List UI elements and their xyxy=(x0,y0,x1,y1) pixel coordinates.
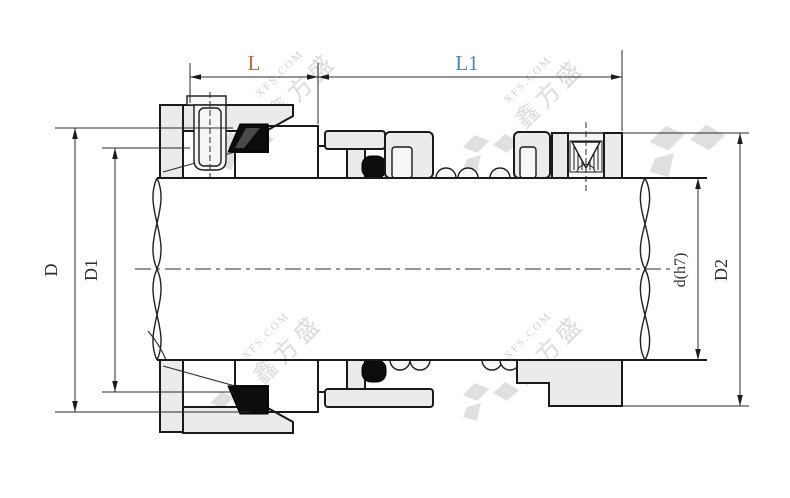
label-D: D xyxy=(41,264,61,277)
spring-cup-right-step xyxy=(520,147,536,178)
retainer-flange-bottom xyxy=(325,389,433,407)
retainer-flange xyxy=(325,131,385,149)
spring-coils xyxy=(436,168,510,178)
stud-cap xyxy=(187,96,226,105)
collar-left-bar xyxy=(552,133,568,178)
label-L1: L1 xyxy=(455,51,478,75)
seal-drawing-svg: XFS.COM 鑫方盛 XFS.COM 鑫方盛 XFS.COM 鑫方盛 XFS.… xyxy=(0,0,790,498)
collar-right-bar xyxy=(604,133,622,178)
spring-cup-left-step xyxy=(392,147,412,178)
label-L: L xyxy=(248,51,261,75)
drawing-background xyxy=(0,0,790,498)
label-D2: D2 xyxy=(711,259,731,281)
label-D1: D1 xyxy=(81,259,101,281)
label-shaft-dia: d(h7) xyxy=(672,253,689,288)
oring xyxy=(362,156,386,178)
oring-bottom xyxy=(362,360,386,382)
technical-drawing-canvas: XFS.COM 鑫方盛 XFS.COM 鑫方盛 XFS.COM 鑫方盛 XFS.… xyxy=(0,0,790,498)
